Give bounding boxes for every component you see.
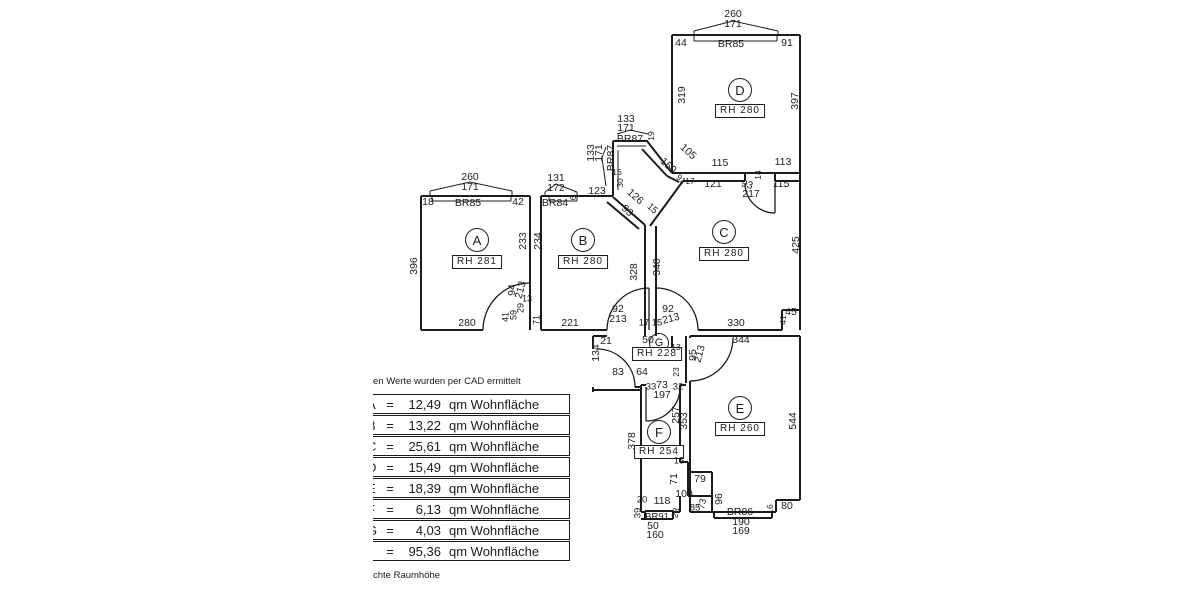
equals-sign: = [383, 397, 397, 412]
dimension-label: 15 [674, 456, 685, 466]
room-label: A [465, 228, 489, 252]
area-unit: qm Wohnfläche [441, 523, 539, 538]
roomheight-note: chte Raumhöhe [373, 570, 440, 581]
equals-sign: = [383, 460, 397, 475]
area-value: 15,49 [397, 460, 441, 475]
dimension-label: 20 [637, 495, 648, 505]
area-unit: qm Wohnfläche [441, 418, 539, 433]
roomheight-label: RH 280 [715, 104, 765, 118]
area-unit: qm Wohnfläche [441, 544, 539, 559]
equals-sign: = [383, 418, 397, 433]
dimension-label: 115 [773, 179, 790, 190]
dimension-label: 80 [781, 501, 793, 512]
dimension-label: 171 [724, 19, 742, 30]
window-sill-label: BR87 [617, 134, 643, 145]
area-unit: qm Wohnfläche [441, 397, 539, 412]
dimension-label: 105 [678, 142, 698, 162]
window-sill-label: BR85 [718, 39, 744, 50]
dimension-label: 425 [791, 236, 802, 254]
dimension-label: 150 [658, 156, 678, 176]
room-letter: F [373, 502, 383, 517]
dimension-label: 41 [779, 315, 788, 324]
dimension-label: 213 [661, 312, 681, 327]
area-value: 13,22 [397, 418, 441, 433]
dimension-label: 41 [502, 312, 511, 322]
dimension-label: 113 [775, 157, 792, 168]
room-label: F [647, 420, 671, 444]
dimension-label: 100 [675, 489, 693, 500]
area-row: A=12,49qm Wohnfläche [373, 394, 570, 414]
area-row: C=25,61qm Wohnfläche [373, 436, 570, 456]
cad-note: en Werte wurden per CAD ermittelt [373, 376, 521, 387]
window-sill-label: BR85 [455, 198, 481, 209]
area-value: 4,03 [397, 523, 441, 538]
dimension-label: 118 [654, 496, 671, 507]
area-row: =95,36qm Wohnfläche [373, 541, 570, 561]
dimension-label: 340 [652, 258, 663, 276]
area-unit: qm Wohnfläche [441, 481, 539, 496]
dimension-label: 17 [685, 177, 694, 186]
roomheight-label: RH 260 [715, 422, 765, 436]
dimension-label: 171 [617, 123, 635, 134]
dimension-label: 233 [518, 232, 529, 250]
dimension-label: 221 [561, 318, 579, 329]
dimension-label: 18 [422, 197, 434, 208]
roomheight-label: RH 280 [558, 255, 608, 269]
window-sill-label: BR84 [542, 198, 568, 209]
dimension-label: 15 [652, 318, 663, 328]
room-label: B [571, 228, 595, 252]
dimension-label: 16 [612, 168, 621, 177]
room-label: C [712, 220, 736, 244]
dimension-label: 213 [609, 314, 627, 325]
equals-sign: = [383, 523, 397, 538]
dimension-label: 213 [693, 344, 708, 364]
dimension-label: 115 [712, 158, 729, 169]
dimension-label: 217 [742, 189, 760, 200]
dimension-label: 16 [766, 504, 775, 513]
dimension-label: 14 [754, 170, 763, 179]
dimension-label: 171 [594, 144, 605, 162]
dimension-label: 6 [570, 196, 578, 200]
area-table: A=12,49qm WohnflächeB=13,22qm Wohnfläche… [373, 394, 570, 564]
dimension-label: 44 [675, 38, 687, 49]
area-row: E=18,39qm Wohnfläche [373, 478, 570, 498]
floorplan-page: 26017144BR8591319397DRH 28026017118BR854… [0, 0, 1200, 600]
room-label: D [728, 78, 752, 102]
dimension-label: 64 [636, 367, 648, 378]
area-row: G=4,03qm Wohnfläche [373, 520, 570, 540]
dimension-label: 397 [790, 92, 801, 110]
dimension-label: 544 [788, 412, 799, 430]
equals-sign: = [383, 481, 397, 496]
area-value: 12,49 [397, 397, 441, 412]
dimension-label: 42 [512, 197, 524, 208]
dimension-label: 17 [639, 318, 650, 328]
area-value: 95,36 [397, 544, 441, 559]
dimension-label: 91 [781, 38, 793, 49]
dimension-label: 123 [588, 186, 606, 197]
area-row: F=6,13qm Wohnfläche [373, 499, 570, 519]
room-letter: A [373, 397, 383, 412]
dimension-label: 121 [704, 179, 722, 190]
dimension-label: 23 [670, 507, 681, 519]
dimension-label: 396 [409, 257, 420, 275]
dimension-label: 171 [461, 182, 479, 193]
room-letter: E [373, 481, 383, 496]
dimension-label: 19 [647, 131, 656, 140]
area-row: B=13,22qm Wohnfläche [373, 415, 570, 435]
dimension-label: 134 [591, 344, 602, 362]
room-label: E [728, 396, 752, 420]
area-value: 25,61 [397, 439, 441, 454]
dimension-label: 378 [627, 432, 638, 450]
dimension-label: 30 [616, 178, 625, 187]
dimension-label: 71 [533, 315, 542, 325]
room-letter: D [373, 460, 383, 475]
dimension-label: 39 [633, 508, 643, 519]
area-unit: qm Wohnfläche [441, 502, 539, 517]
plan-labels: 26017144BR8591319397DRH 28026017118BR854… [0, 0, 1200, 600]
room-letter: G [373, 523, 383, 538]
equals-sign: = [383, 544, 397, 559]
dimension-label: 234 [533, 232, 544, 250]
area-unit: qm Wohnfläche [441, 439, 539, 454]
dimension-label: 15 [645, 202, 659, 216]
dimension-label: 21 [600, 336, 612, 347]
room-letter: B [373, 418, 383, 433]
dimension-label: 13 [671, 343, 680, 352]
dimension-label: 257 [671, 406, 682, 424]
dimension-label: 160 [646, 530, 664, 541]
room-letter: C [373, 439, 383, 454]
dimension-label: 73 [697, 498, 709, 511]
dimension-label: 79 [694, 474, 706, 485]
dimension-label: 83 [612, 367, 624, 378]
dimension-label: 93 [619, 203, 635, 219]
dimension-label: 23 [672, 367, 681, 376]
dimension-label: 32 [673, 382, 684, 392]
dimension-label: 344 [732, 335, 750, 346]
roomheight-label: RH 281 [452, 255, 502, 269]
dimension-label: 330 [727, 318, 745, 329]
dimension-label: 71 [669, 473, 680, 485]
area-unit: qm Wohnfläche [441, 460, 539, 475]
dimension-label: 59 [510, 310, 519, 320]
equals-sign: = [383, 439, 397, 454]
dimension-label: 169 [732, 526, 750, 537]
dimension-label: 280 [458, 318, 476, 329]
area-value: 18,39 [397, 481, 441, 496]
dimension-label: 328 [629, 263, 640, 281]
area-row: D=15,49qm Wohnfläche [373, 457, 570, 477]
roomheight-label: RH 280 [699, 247, 749, 261]
area-value: 6,13 [397, 502, 441, 517]
dimension-label: 319 [677, 86, 688, 104]
dimension-label: 96 [714, 493, 725, 505]
equals-sign: = [383, 502, 397, 517]
dimension-label: 172 [547, 183, 565, 194]
dimension-label: 197 [653, 390, 671, 401]
